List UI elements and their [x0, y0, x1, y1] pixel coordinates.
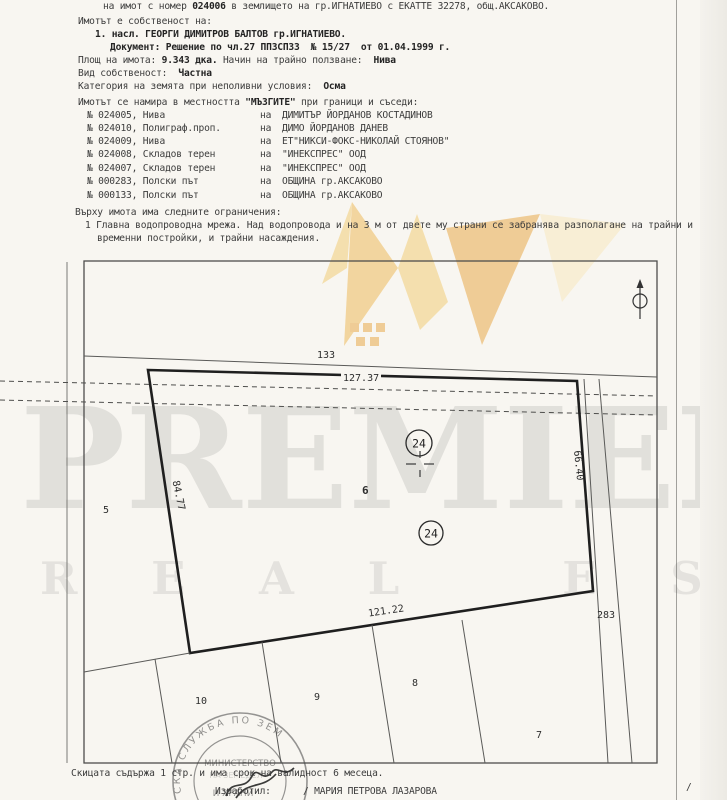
- neighbor-plot-8-label: 8: [412, 678, 418, 689]
- water-main-dashed-line-south: [0, 400, 657, 415]
- validity-line: Скицата съдържа 1 стр. и има срок на вал…: [71, 768, 383, 779]
- massif-symbol-lower: 24: [419, 521, 443, 545]
- massif-number-text: 24: [424, 527, 438, 541]
- massif-symbol-upper: 24: [406, 430, 434, 477]
- massif-number-text: 24: [412, 437, 426, 451]
- cadastral-diagram: 24 24 СКА СЛУЖБА ПО ЗЕМ МИНИСТЕРСТВО НА: [0, 0, 727, 800]
- subdivision-line: [462, 620, 485, 763]
- measure-top-road-label: 133: [315, 350, 337, 361]
- page-border-line: [676, 0, 677, 800]
- footer-slash-mark: /: [686, 782, 692, 793]
- author-name: / МАРИЯ ПЕТРОВА ЛАЗАРОВА: [303, 786, 437, 797]
- subdivision-line: [155, 659, 172, 763]
- svg-text:СКА СЛУЖБА ПО ЗЕМ: СКА СЛУЖБА ПО ЗЕМ: [172, 715, 286, 794]
- lower-boundary-left-segment: [84, 653, 190, 672]
- water-main-dashed-line-north: [0, 381, 657, 396]
- neighbor-plot-7-label: 7: [536, 730, 542, 741]
- plot-number-label: 6: [362, 484, 369, 497]
- survey-cross-icon: [406, 451, 434, 477]
- stamp-arc-text: СКА СЛУЖБА ПО ЗЕМ: [172, 715, 286, 794]
- author-label: Изработил:: [215, 786, 271, 797]
- neighbor-plot-9-label: 9: [314, 692, 320, 703]
- north-arrow-icon: [633, 279, 647, 319]
- subdivision-line: [372, 625, 394, 763]
- scan-edge-shadow: [700, 0, 727, 800]
- scanned-cadastral-sketch: PREMIER R E A L E S T A T E на имот с но…: [0, 0, 727, 800]
- right-road-number-label: 283: [597, 610, 615, 621]
- neighbor-plot-5-label: 5: [103, 505, 109, 516]
- neighbor-plot-10-label: 10: [195, 696, 207, 707]
- subdivision-line: [262, 642, 281, 763]
- measure-top-edge-label: 127.37: [341, 373, 381, 384]
